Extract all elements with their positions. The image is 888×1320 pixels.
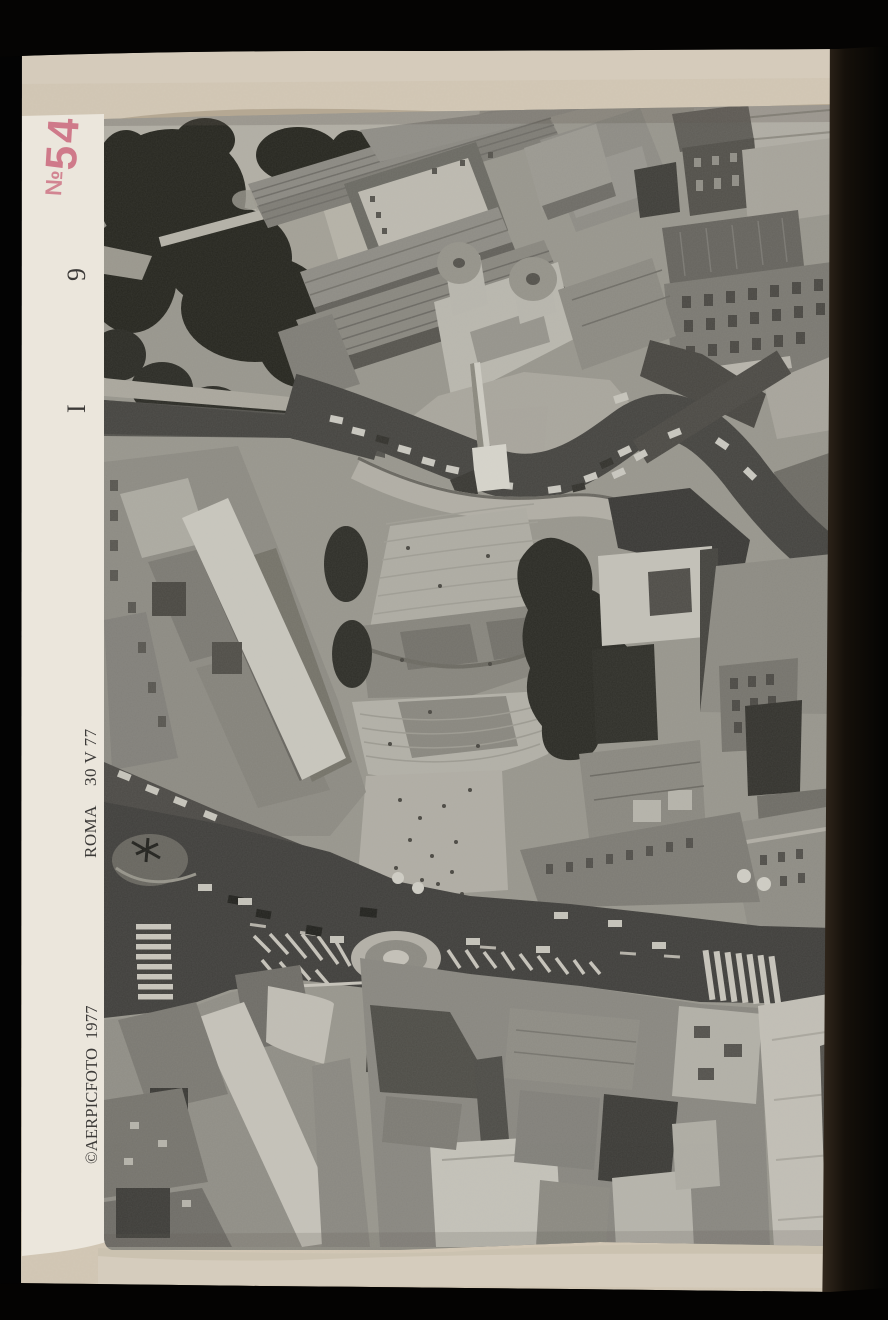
- svg-text:№: №: [40, 169, 68, 196]
- svg-text:©AERPICFOTO 1977: ©AERPICFOTO 1977: [82, 1005, 101, 1164]
- svg-text:54: 54: [37, 114, 89, 172]
- svg-text:9: 9: [62, 268, 91, 281]
- svg-text:ROMA 30 V 77: ROMA 30 V 77: [81, 728, 100, 858]
- svg-text:I: I: [62, 404, 91, 413]
